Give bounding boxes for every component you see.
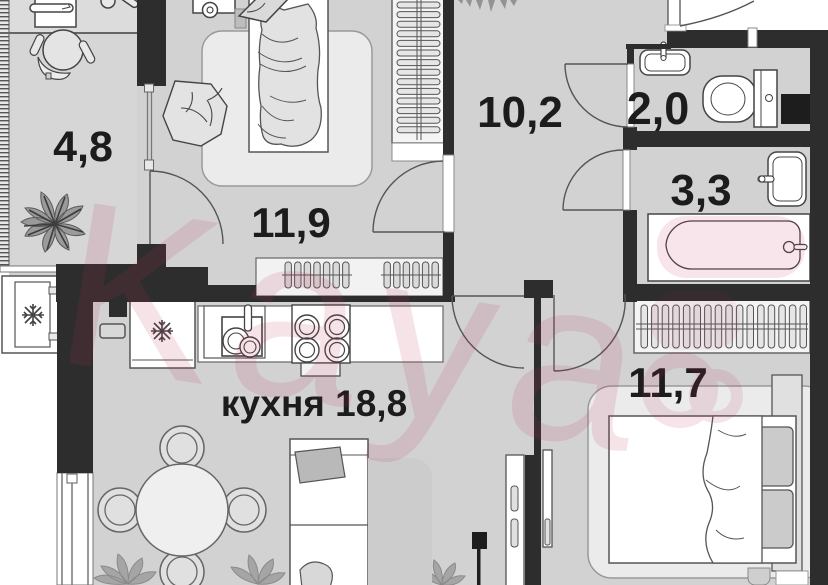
svg-text:10,2: 10,2 [477, 88, 563, 137]
svg-text:3,3: 3,3 [670, 166, 731, 215]
svg-text:2,0: 2,0 [627, 83, 690, 134]
